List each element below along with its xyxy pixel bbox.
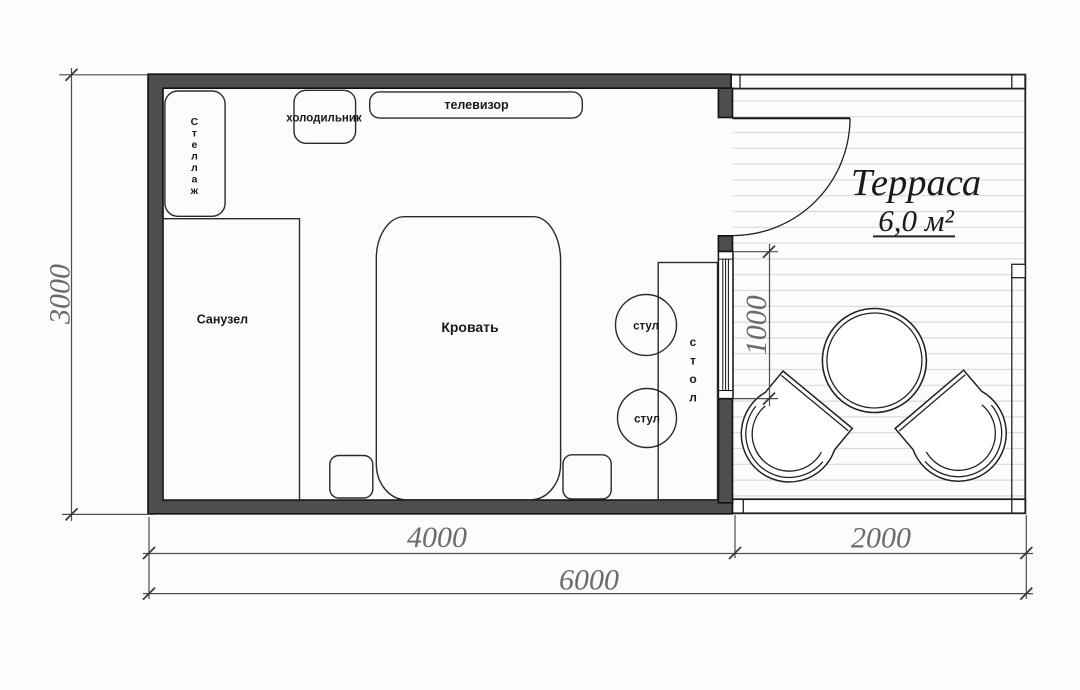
svg-text:6000: 6000 [559, 564, 619, 597]
svg-text:л: л [689, 391, 697, 405]
svg-text:Терраса: Терраса [851, 162, 981, 204]
svg-text:Кровать: Кровать [441, 319, 499, 335]
svg-text:холодильник: холодильник [286, 113, 362, 125]
svg-text:3000: 3000 [44, 264, 77, 325]
svg-text:6,0 м²: 6,0 м² [878, 203, 954, 238]
svg-text:л: л [191, 151, 198, 163]
svg-text:1000: 1000 [740, 295, 773, 355]
svg-text:ж: ж [190, 185, 199, 197]
svg-text:С: С [191, 116, 199, 128]
svg-text:о: о [689, 372, 696, 386]
svg-text:т: т [192, 128, 197, 140]
svg-text:4000: 4000 [407, 521, 467, 554]
svg-text:стул: стул [634, 413, 660, 425]
svg-text:л: л [191, 162, 198, 174]
svg-text:Санузел: Санузел [197, 312, 248, 326]
svg-text:т: т [690, 354, 696, 368]
svg-text:телевизор: телевизор [444, 98, 509, 112]
svg-text:а: а [191, 174, 197, 186]
svg-text:стул: стул [633, 320, 659, 332]
svg-text:е: е [191, 139, 197, 151]
svg-text:2000: 2000 [851, 522, 911, 555]
svg-text:с: с [690, 335, 697, 349]
